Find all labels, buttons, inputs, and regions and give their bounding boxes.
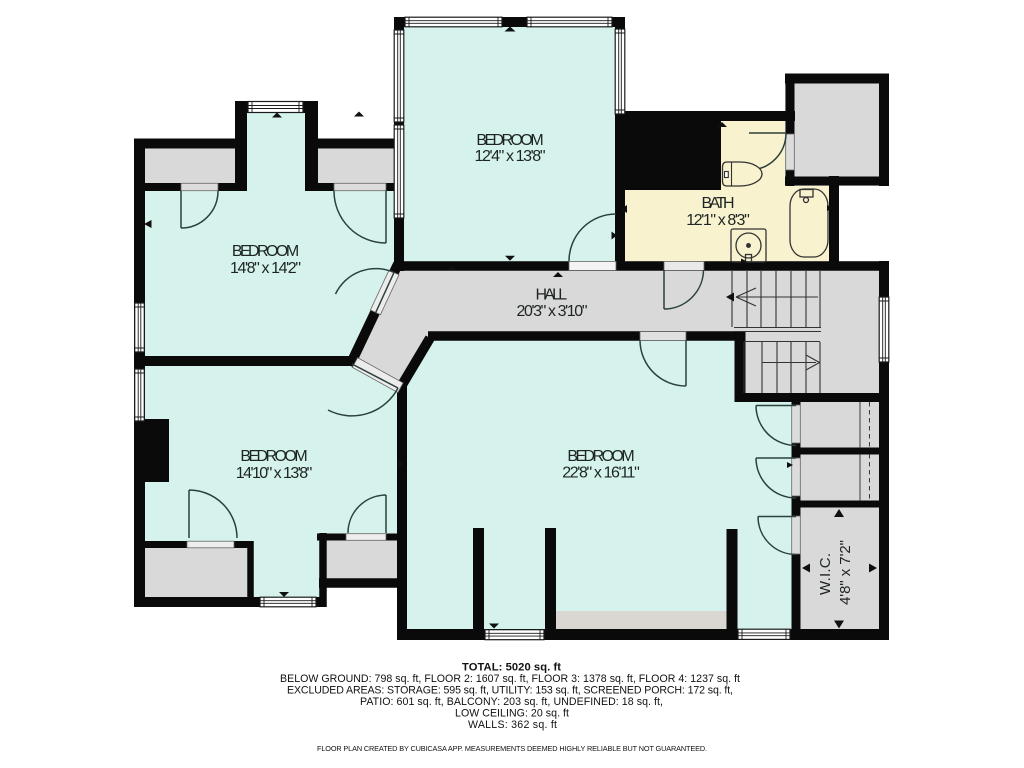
svg-text:12'1" x 8'3": 12'1" x 8'3" bbox=[686, 212, 750, 229]
svg-text:12'4" x 13'8": 12'4" x 13'8" bbox=[475, 148, 546, 165]
svg-text:W.I.C.: W.I.C. bbox=[817, 553, 834, 595]
svg-text:BEDROOM: BEDROOM bbox=[476, 132, 543, 149]
svg-text:WALLS: 362 sq. ft: WALLS: 362 sq. ft bbox=[468, 719, 557, 731]
svg-text:PATIO: 601 sq. ft, BALCONY: 20: PATIO: 601 sq. ft, BALCONY: 203 sq. ft, … bbox=[360, 696, 663, 708]
svg-text:TOTAL: 5020 sq. ft: TOTAL: 5020 sq. ft bbox=[462, 662, 561, 674]
svg-text:BEDROOM: BEDROOM bbox=[567, 448, 634, 465]
svg-text:BELOW GROUND: 798 sq. ft, FLOO: BELOW GROUND: 798 sq. ft, FLOOR 2: 1607 … bbox=[280, 673, 740, 685]
svg-text:LOW CEILING: 20 sq. ft: LOW CEILING: 20 sq. ft bbox=[455, 708, 569, 720]
svg-text:BEDROOM: BEDROOM bbox=[240, 448, 307, 465]
svg-text:22'8" x 16'11": 22'8" x 16'11" bbox=[562, 465, 640, 482]
svg-text:14'8" x 14'2": 14'8" x 14'2" bbox=[230, 260, 301, 277]
svg-text:HALL: HALL bbox=[535, 287, 567, 304]
svg-text:4'8" x 7'2": 4'8" x 7'2" bbox=[837, 540, 854, 605]
svg-text:14'10" x 13'8": 14'10" x 13'8" bbox=[236, 465, 313, 482]
svg-text:BEDROOM: BEDROOM bbox=[232, 243, 299, 260]
svg-text:20'3" x 3'10": 20'3" x 3'10" bbox=[517, 303, 588, 320]
svg-text:BATH: BATH bbox=[702, 195, 735, 212]
svg-text:EXCLUDED AREAS: STORAGE: 595 s: EXCLUDED AREAS: STORAGE: 595 sq. ft, UTI… bbox=[287, 685, 733, 697]
svg-text:FLOOR PLAN CREATED BY CUBICASA: FLOOR PLAN CREATED BY CUBICASA APP. MEAS… bbox=[317, 744, 707, 753]
